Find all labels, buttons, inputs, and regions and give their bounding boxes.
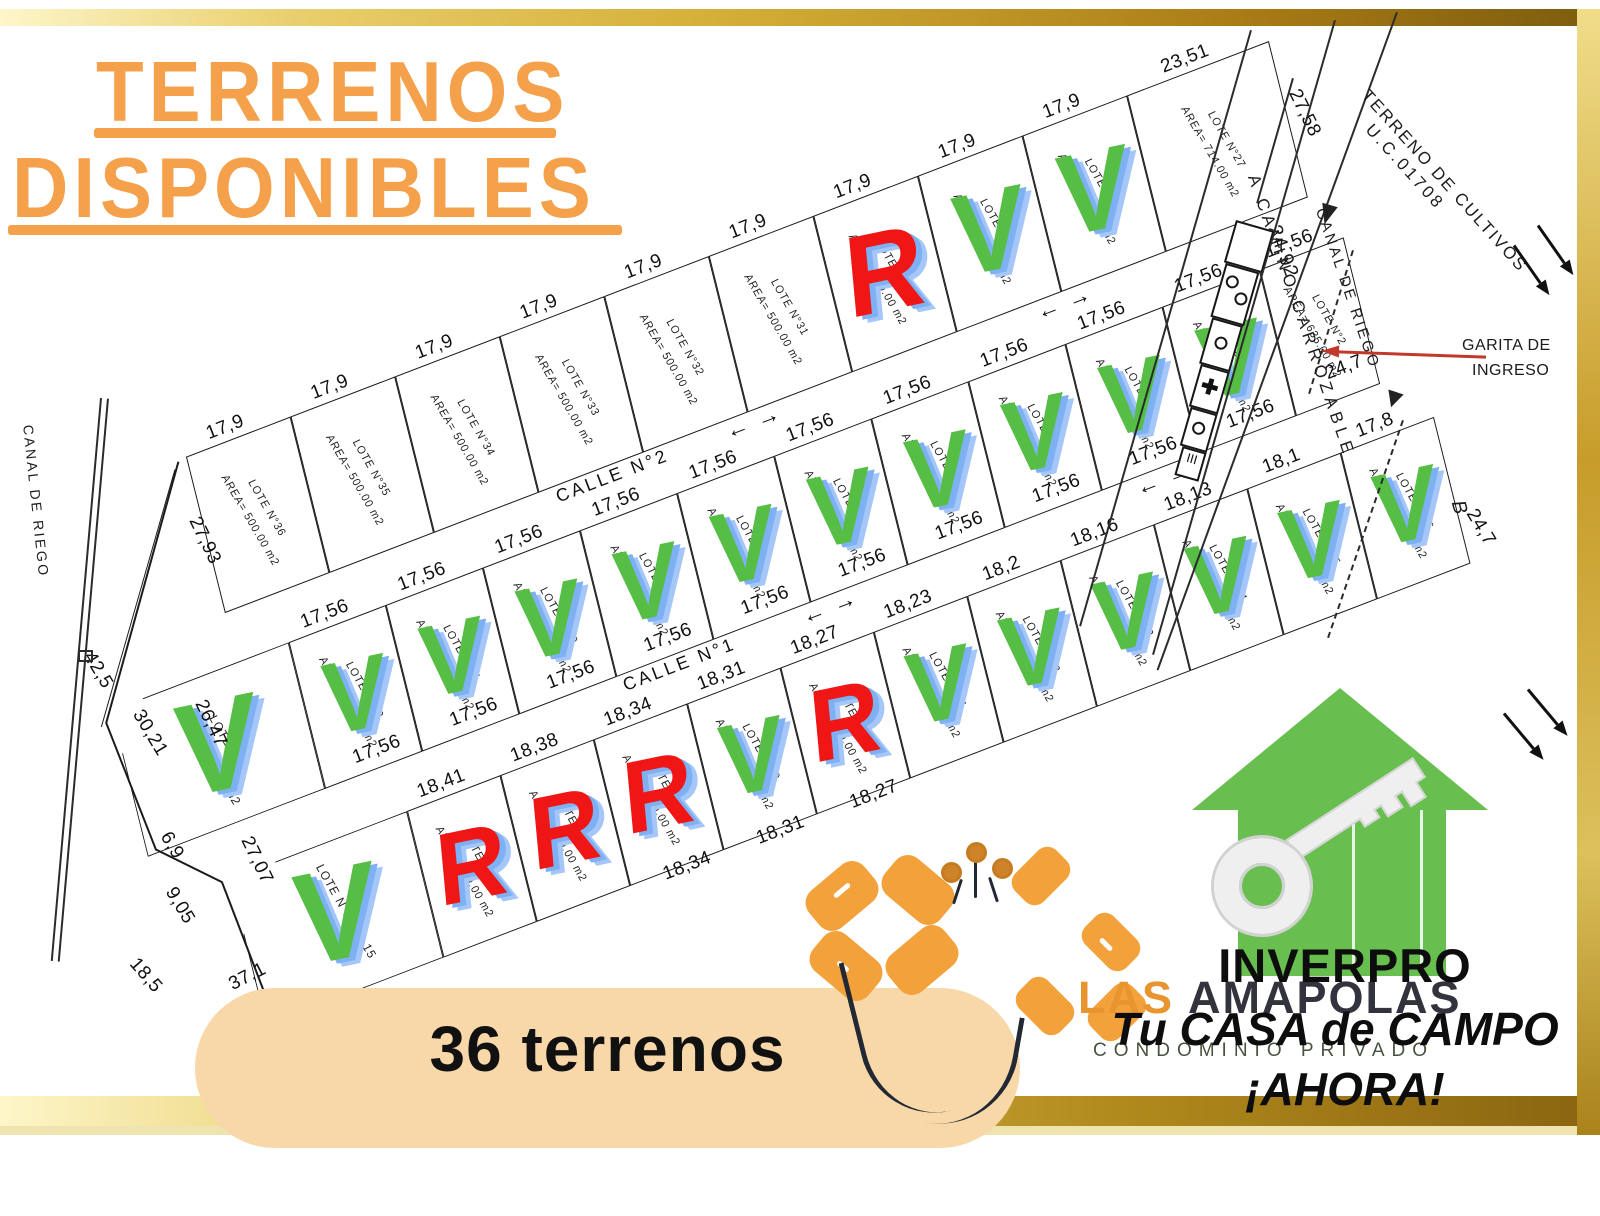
garita-line1: GARITA DE	[1462, 334, 1551, 359]
lote-n°33-label: LOTE N°33AREA= 500.00 m2	[528, 338, 613, 452]
mark-reserved: R	[432, 806, 511, 923]
mark-available: V	[1274, 484, 1348, 600]
mark-reserved: R	[525, 770, 604, 887]
mark-available: V	[714, 699, 788, 815]
mark-available: V	[947, 167, 1029, 296]
mark-available: V	[1368, 448, 1442, 564]
mark-available: V	[901, 628, 975, 744]
canal-tick	[78, 650, 93, 662]
lote-n°35-label: LOTE N°35AREA= 500.00 m2	[319, 418, 404, 532]
garita-line2: INGRESO	[1472, 359, 1551, 384]
double-arrow-2b	[1503, 713, 1535, 750]
mark-reserved: R	[805, 663, 884, 780]
key-ring	[1214, 838, 1310, 934]
double-arrow-1a	[1537, 225, 1566, 264]
lote-n°32-label: LOTE N°32AREA= 500.00 m2	[633, 298, 718, 412]
title-underline1	[94, 128, 556, 138]
lote-n°31-label: LOTE N°31AREA= 500.00 m2	[737, 257, 822, 371]
lote-n°34-label: LOTE N°34AREA= 500.00 m2	[424, 378, 509, 492]
mark-available: V	[1088, 556, 1162, 672]
mark-available: V	[288, 841, 382, 989]
mark-reserved: R	[840, 206, 928, 337]
mark-available: V	[1052, 127, 1134, 256]
promo-company: INVERPRO	[1120, 938, 1570, 993]
garita-label: GARITA DE INGRESO	[1462, 334, 1551, 384]
mark-available: V	[994, 592, 1068, 708]
promo-line1: Tu CASA de CAMPO	[1085, 1002, 1585, 1056]
lote-n°36-label: LOTE N°36AREA= 500.00 m2	[215, 458, 300, 572]
promo-line2: ¡AHORA!	[1120, 1062, 1570, 1116]
flyer-root: { "title": {"line1": "TERRENOS", "line2"…	[0, 0, 1600, 1135]
mark-reserved: R	[618, 735, 697, 852]
